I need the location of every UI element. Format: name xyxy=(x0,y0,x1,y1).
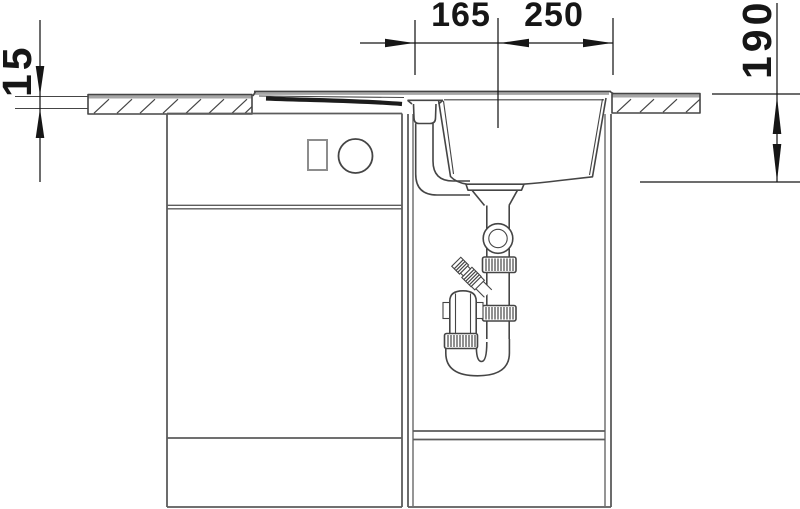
basin-outline xyxy=(439,98,607,184)
dimension-label-250: 250 xyxy=(524,0,584,34)
arrowhead-up xyxy=(773,97,782,135)
trap-leg-body xyxy=(450,291,476,334)
arrowhead-up xyxy=(36,109,45,139)
sink-installation-drawing: 15 165 250 190 xyxy=(0,0,800,509)
basin-right-wall-inner xyxy=(590,99,603,175)
hatch-line xyxy=(94,99,109,113)
hatch-line xyxy=(117,99,132,113)
drainboard-groove-band xyxy=(266,99,402,105)
cabinet-symbol-rectangle xyxy=(308,140,327,170)
hatch-line xyxy=(232,99,247,113)
drain-trap-assembly xyxy=(416,124,524,376)
flange-outline xyxy=(466,184,524,190)
coupling-body xyxy=(483,306,517,322)
trap-left-leg xyxy=(443,291,483,349)
coupling-body xyxy=(483,257,517,273)
dimension-label-190: 190 xyxy=(734,0,780,79)
hatch-line xyxy=(686,99,700,112)
coupling-nut-trap xyxy=(445,334,478,349)
countertop-left-section xyxy=(15,94,252,114)
elbow-outer-wall xyxy=(416,124,470,196)
outlet-bowl-body xyxy=(414,104,437,124)
countertop-hatching xyxy=(617,99,700,112)
sink-rim-right-lip xyxy=(610,92,614,94)
tailpiece-left-slant xyxy=(472,190,485,205)
basin xyxy=(439,98,607,184)
dimension-label-165: 165 xyxy=(431,0,491,34)
sink-rim-left-lip xyxy=(253,92,256,97)
cabinet-symbol-circle xyxy=(339,139,373,173)
drainboard-drain-elbow xyxy=(416,124,470,196)
arrowhead-right xyxy=(583,39,612,48)
elbow-inner-wall xyxy=(433,124,470,182)
arrowhead-down xyxy=(773,144,782,182)
hatch-line xyxy=(140,99,155,113)
sink-installation-diagram: 15 165 250 190 xyxy=(0,0,800,509)
arrowhead-left xyxy=(500,39,529,48)
hatch-line xyxy=(163,99,178,113)
hatch-line xyxy=(186,99,201,113)
dimension-countertop-thickness: 15 xyxy=(0,20,44,182)
hatch-line xyxy=(209,99,224,113)
basin-drain-flange xyxy=(466,184,524,205)
dimension-basin-depth: 190 xyxy=(640,0,800,182)
tailpiece-right-slant xyxy=(509,190,518,205)
coupling-nut-lower xyxy=(483,306,517,322)
hatch-line xyxy=(245,107,252,114)
countertop-right-section xyxy=(612,93,700,113)
base-cabinet-left xyxy=(167,114,402,508)
hatch-line xyxy=(663,99,677,112)
countertop-hatching xyxy=(94,99,252,113)
hatch-line xyxy=(640,99,654,112)
dimension-top-widths: 165 250 xyxy=(360,0,613,128)
arrowhead-right xyxy=(385,39,414,48)
dimension-label-15: 15 xyxy=(0,43,40,97)
pipe-connector-ring-outer xyxy=(483,224,513,254)
coupling-nut-upper xyxy=(483,257,517,273)
hatch-line xyxy=(617,99,631,112)
